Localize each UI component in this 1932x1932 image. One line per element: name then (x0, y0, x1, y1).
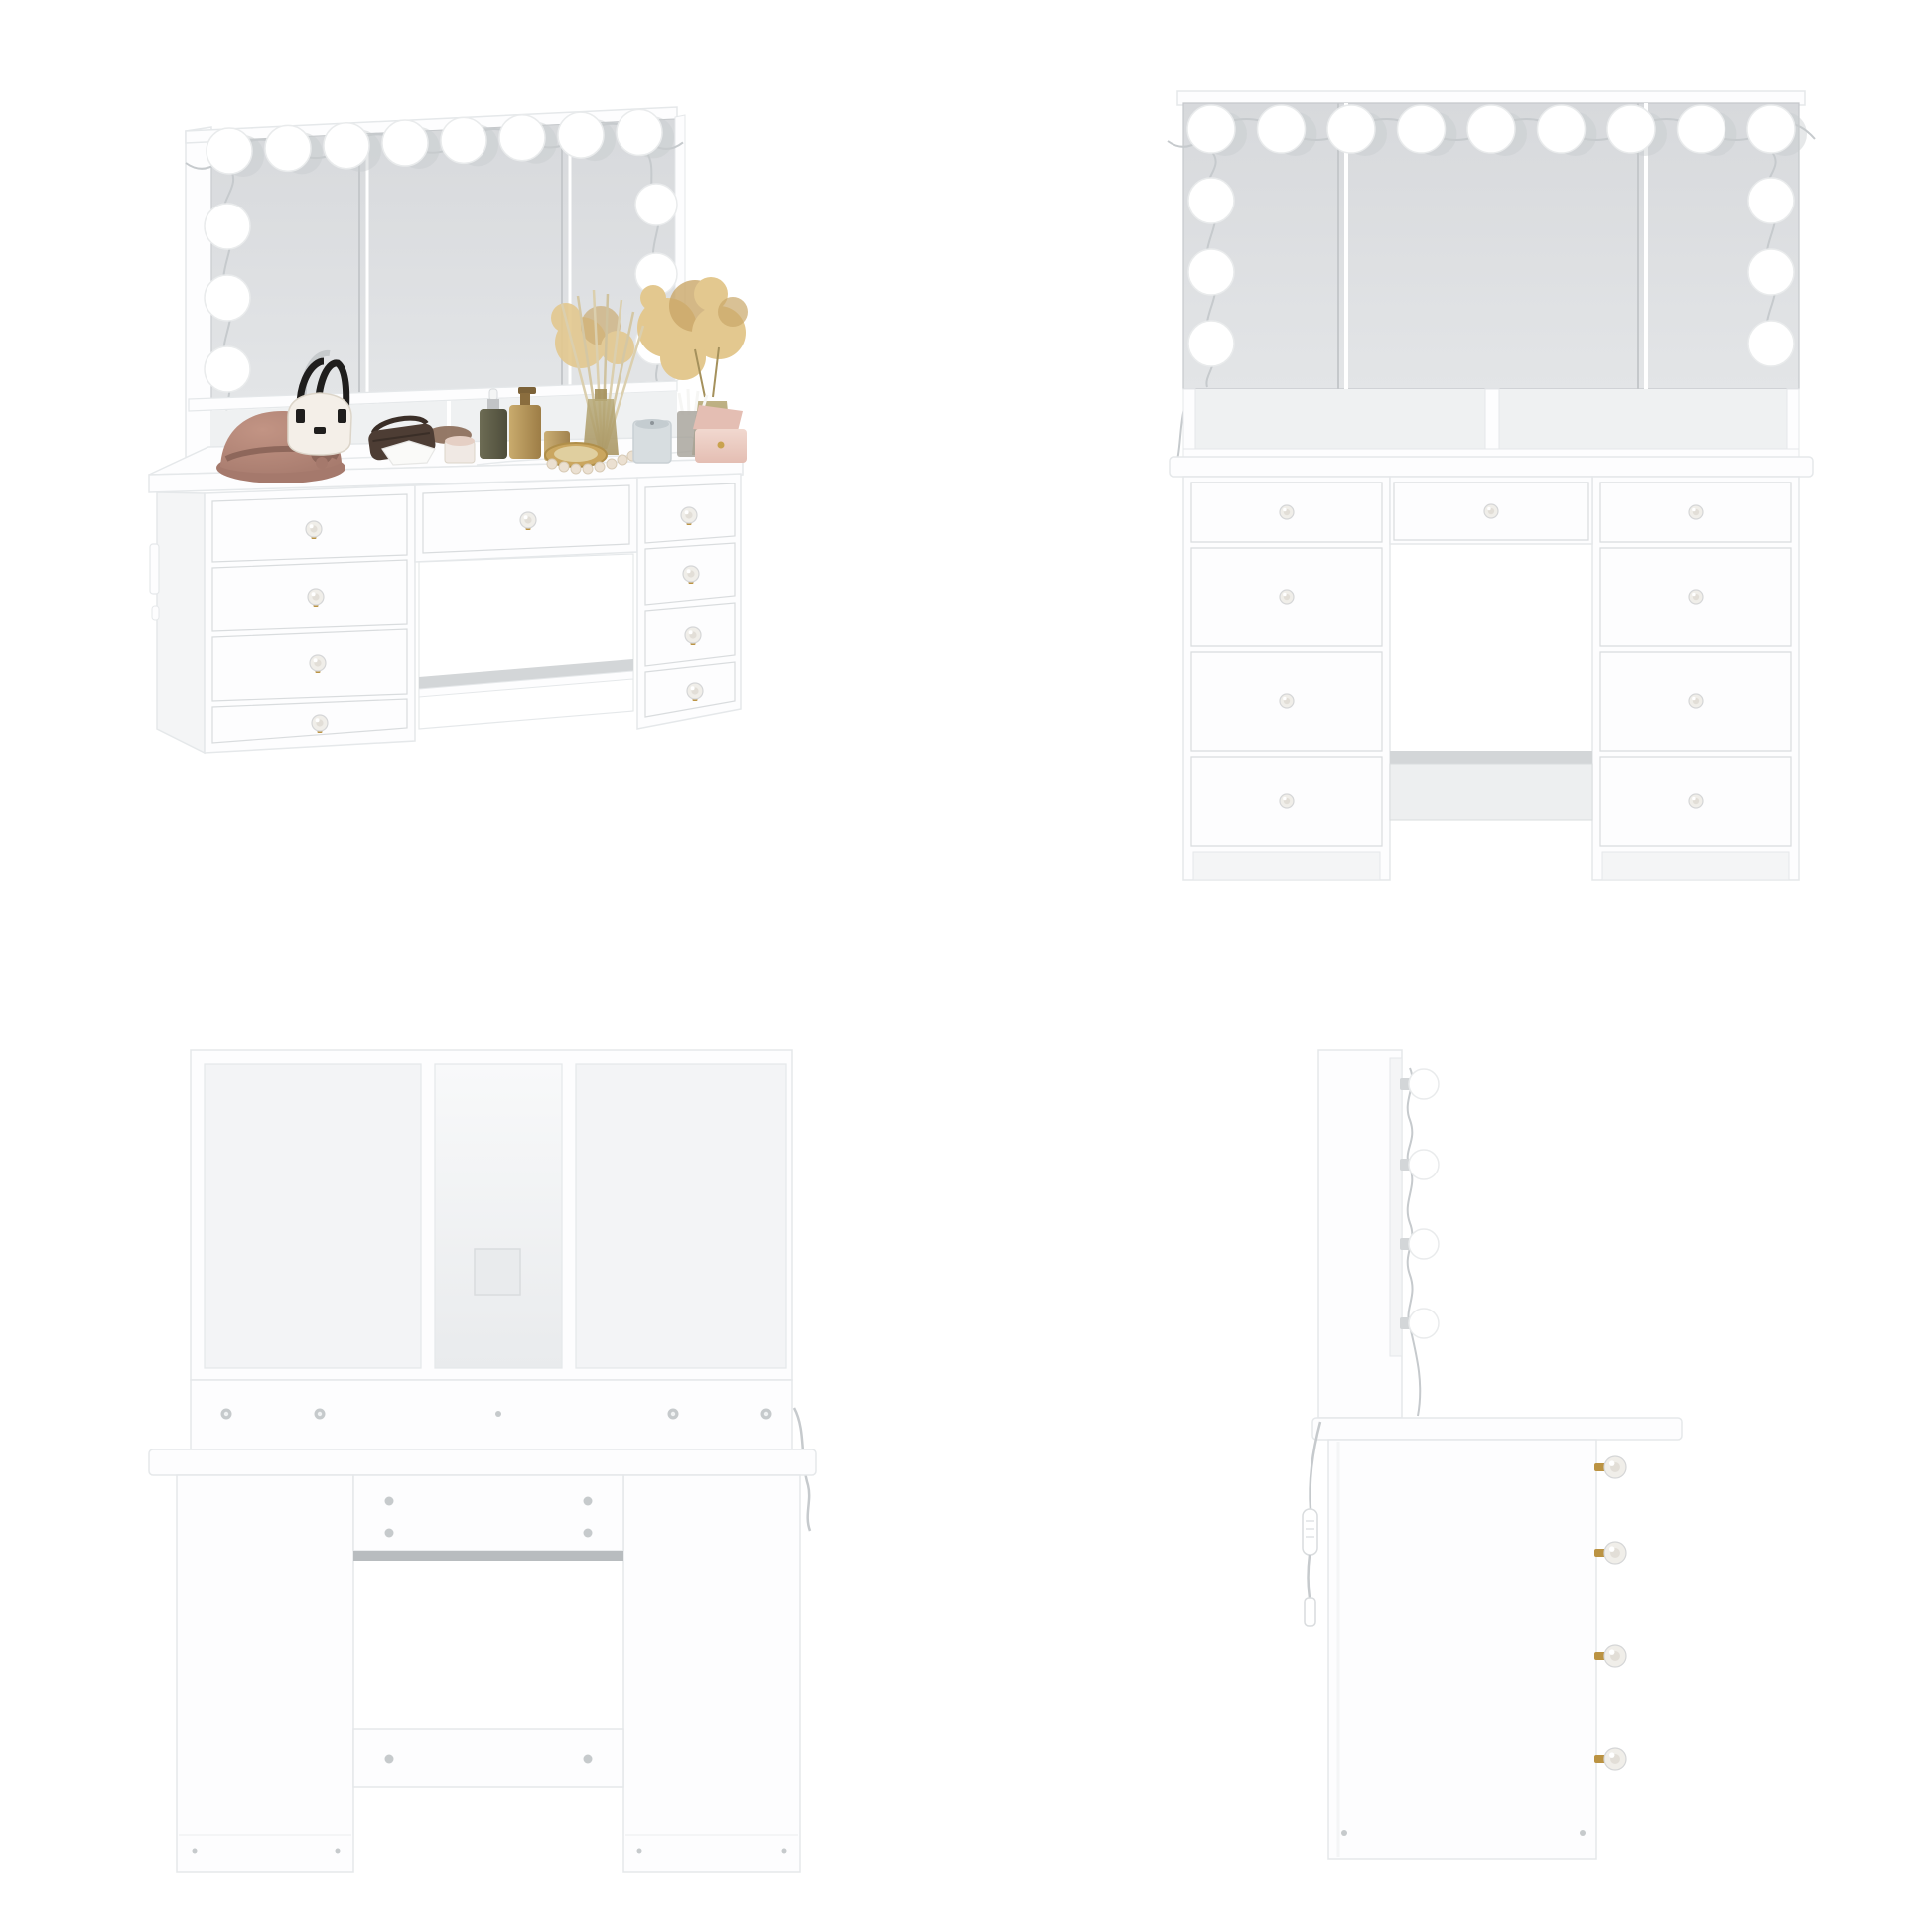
desk-side (1328, 1440, 1626, 1859)
light-bulb-icon (1747, 105, 1795, 153)
screw (637, 1849, 642, 1854)
light-bulb-icon (205, 204, 250, 249)
knob-highlight (1609, 1649, 1615, 1655)
knob-highlight (1609, 1460, 1615, 1466)
power-strip (150, 544, 159, 594)
screw (1580, 1830, 1586, 1836)
view-perspective (149, 107, 748, 753)
drawer-slide-strip (353, 1551, 623, 1561)
knob-highlight (1609, 1546, 1615, 1552)
lower-crossbar (353, 1729, 623, 1787)
light-bulb-icon (1398, 105, 1446, 153)
knob-highlight (1283, 697, 1287, 701)
tabletop (1170, 457, 1813, 477)
light-bulb-icon (635, 184, 677, 225)
desk (150, 474, 741, 753)
light-bulb-icon (1607, 105, 1655, 153)
light-bulb-icon (617, 109, 662, 155)
light-bulb-icon (1467, 105, 1515, 153)
knob-highlight (312, 592, 316, 596)
screw (336, 1849, 341, 1854)
mirror-side (1318, 1050, 1439, 1418)
mirror-frame-edge (1390, 1058, 1402, 1356)
knob-highlight (310, 524, 314, 528)
tabletop (149, 1449, 816, 1475)
rail-board (191, 1380, 792, 1449)
knob-highlight (1692, 508, 1696, 512)
knob-highlight (685, 510, 689, 514)
power-cord-assembly (1303, 1422, 1320, 1626)
bulb-column (1400, 1069, 1439, 1338)
product-image (0, 0, 1932, 1932)
drawer-knobs (1594, 1456, 1626, 1770)
knob-highlight (316, 718, 320, 722)
light-bulb-icon (1409, 1229, 1439, 1259)
jewelry-box (693, 405, 747, 463)
light-bulb-icon (499, 115, 545, 161)
kneehole (419, 554, 633, 729)
knob-highlight (1487, 507, 1491, 511)
light-bulb-icon (1748, 249, 1794, 295)
screw (782, 1849, 787, 1854)
power-strip-button (152, 606, 159, 620)
light-bulb-icon (1409, 1150, 1439, 1179)
light-bulb-icon (1188, 321, 1234, 366)
view-side (1303, 1050, 1682, 1859)
light-bulb-icon (1258, 105, 1306, 153)
light-bulb-icon (205, 275, 250, 321)
hutch (1183, 389, 1799, 459)
light-bulb-icon (558, 112, 604, 158)
cream-jar (445, 436, 475, 463)
inline-switch (1303, 1509, 1317, 1555)
light-bulb-icon (1748, 178, 1794, 223)
knob-highlight (1283, 797, 1287, 801)
light-bulb-icon (1409, 1069, 1439, 1099)
knob-highlight (1692, 593, 1696, 597)
power-cord (1309, 1555, 1311, 1598)
knob-highlight (314, 658, 318, 662)
mirror-back-panel (205, 1064, 421, 1368)
knee-shelf-front (1390, 764, 1592, 820)
knob-highlight (1283, 508, 1287, 512)
desk (1183, 477, 1799, 880)
plinth (1193, 852, 1380, 880)
knob-highlight (524, 515, 528, 519)
screw (385, 1755, 394, 1764)
screw (193, 1849, 198, 1854)
light-bulb-icon (324, 123, 369, 169)
light-bulb-icon (382, 120, 428, 166)
light-bulb-icon (441, 117, 486, 163)
knob-highlight (1692, 697, 1696, 701)
knob-highlight (691, 686, 695, 690)
plinth (1602, 852, 1789, 880)
knob-highlight (1692, 797, 1696, 801)
desk-side-panel (1328, 1440, 1596, 1859)
light-bulb-icon (205, 346, 250, 392)
light-bulb-icon (1188, 178, 1234, 223)
vanity-collage (0, 0, 1932, 1932)
knee-shelf-top (1390, 751, 1592, 764)
light-bulb-icon (207, 128, 252, 174)
light-bulb-icon (1409, 1309, 1439, 1338)
knob-highlight (1609, 1752, 1615, 1758)
light-bulb-icon (265, 125, 311, 171)
light-bulb-icon (1188, 249, 1234, 295)
light-bulb-icon (1327, 105, 1375, 153)
view-back (149, 1050, 816, 1872)
light-bulb-icon (1187, 105, 1235, 153)
candle (633, 419, 671, 463)
mirror-back-panel-center (435, 1064, 562, 1368)
plug (1305, 1598, 1315, 1626)
desk-side-panel (157, 492, 205, 753)
mirror-slab (1318, 1050, 1402, 1418)
screw (1341, 1830, 1347, 1836)
side-panel (623, 1475, 800, 1872)
knob-highlight (687, 569, 691, 573)
light-bulb-icon (1538, 105, 1586, 153)
side-panel (177, 1475, 353, 1872)
tabletop (1312, 1418, 1682, 1440)
screw (584, 1755, 593, 1764)
light-bulb-icon (1748, 321, 1794, 366)
knob-highlight (689, 630, 693, 634)
light-bulb-icon (1678, 105, 1725, 153)
square-cutout (475, 1249, 520, 1295)
mirror-back-panel (576, 1064, 786, 1368)
desk-back (177, 1475, 800, 1872)
back-top-rail (353, 1475, 623, 1551)
mirror-back (191, 1050, 792, 1380)
knob-highlight (1283, 593, 1287, 597)
view-front (1168, 91, 1815, 880)
